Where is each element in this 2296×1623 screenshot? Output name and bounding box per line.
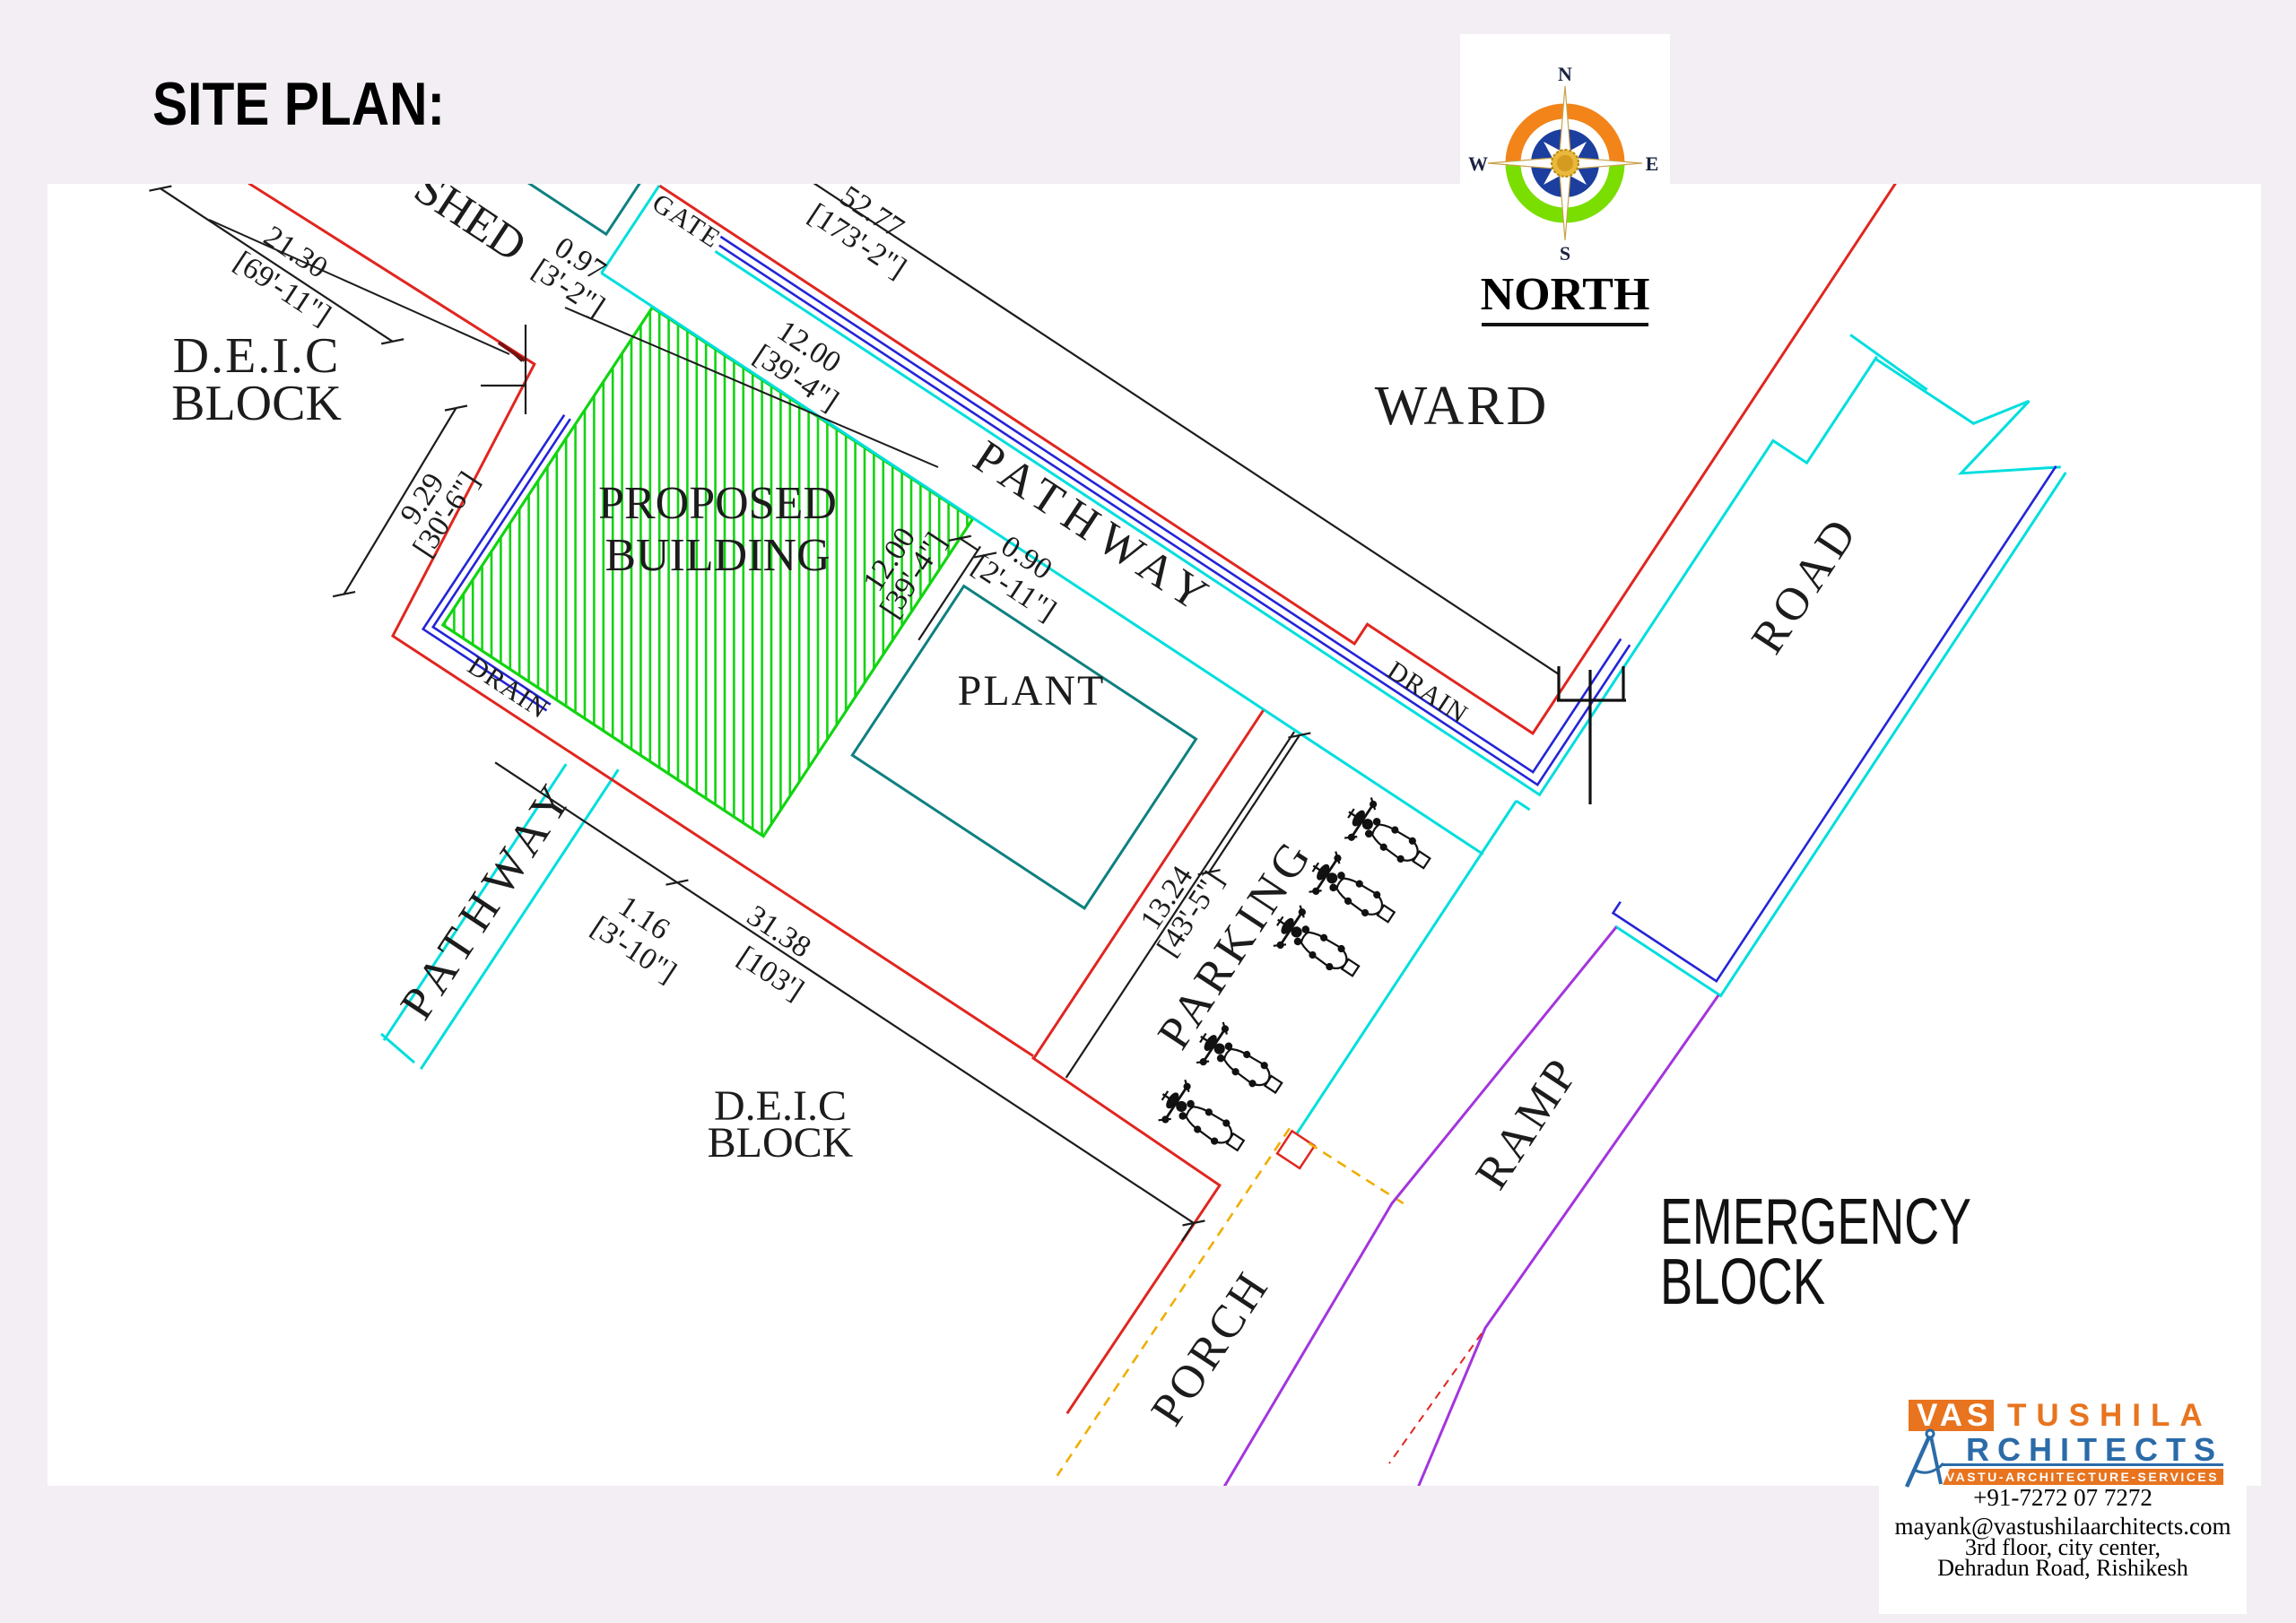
svg-text:BLOCK: BLOCK (1660, 1246, 1825, 1318)
svg-text:NORTH: NORTH (1481, 269, 1650, 320)
svg-text:+91-7272 07 7272: +91-7272 07 7272 (1973, 1484, 2152, 1511)
svg-text:SITE PLAN:: SITE PLAN: (152, 70, 445, 138)
svg-text:RCHITECTS: RCHITECTS (1966, 1431, 2223, 1468)
svg-text:Dehradun Road, Rishikesh: Dehradun Road, Rishikesh (1937, 1555, 2187, 1581)
svg-text:WARD: WARD (1375, 376, 1550, 437)
svg-text:VASTU-ARCHITECTURE-SERVICES: VASTU-ARCHITECTURE-SERVICES (1946, 1470, 2219, 1484)
svg-text:PLANT: PLANT (958, 667, 1106, 715)
svg-text:N: N (1558, 63, 1572, 85)
svg-text:W: W (1468, 152, 1488, 175)
svg-text:S: S (1560, 242, 1570, 265)
svg-text:TUSHILA: TUSHILA (2007, 1398, 2213, 1433)
svg-text:E: E (1646, 152, 1659, 175)
svg-text:BLOCK: BLOCK (708, 1119, 854, 1167)
svg-text:VAS: VAS (1917, 1398, 1992, 1433)
svg-text:BUILDING: BUILDING (604, 530, 830, 581)
svg-text:BLOCK: BLOCK (171, 376, 342, 431)
svg-text:PROPOSED: PROPOSED (598, 478, 837, 529)
